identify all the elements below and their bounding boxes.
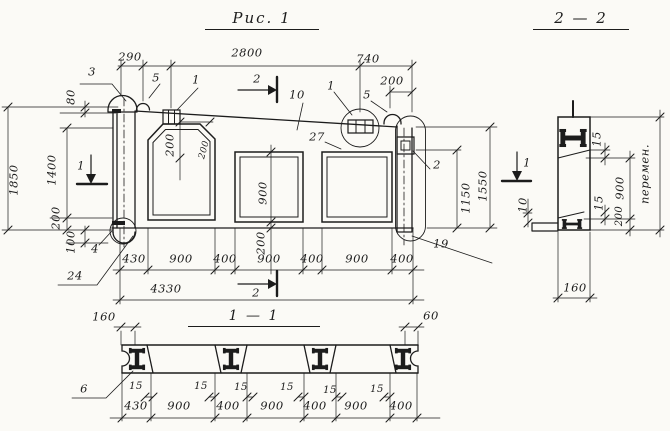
s11-dim-15-b: 15 bbox=[194, 382, 208, 392]
labels-layer: 2902800740200185080140020010020020090020… bbox=[0, 0, 670, 431]
s11-dim-400-c: 400 bbox=[389, 400, 412, 412]
dim-80: 80 bbox=[65, 89, 77, 105]
s22-dim-15-lower: 15 bbox=[593, 195, 605, 211]
dim-200-opening1-vert: 200 bbox=[164, 133, 176, 156]
dim-400-a: 400 bbox=[213, 253, 236, 265]
dim-1150: 1150 bbox=[460, 182, 472, 213]
s11-dim-160: 160 bbox=[92, 311, 115, 323]
dim-400-c: 400 bbox=[390, 253, 413, 265]
s11-dim-15-c: 15 bbox=[234, 383, 248, 393]
dim-430-bottom: 430 bbox=[122, 253, 145, 265]
dim-900-bay3: 900 bbox=[345, 253, 368, 265]
callout-24: 24 bbox=[67, 270, 83, 282]
s22-dim-variable: перемен. bbox=[639, 144, 651, 204]
dim-200-opening1-horiz: 200 bbox=[198, 140, 212, 160]
dim-1550: 1550 bbox=[477, 170, 489, 201]
dim-1850: 1850 bbox=[8, 164, 20, 195]
callout-27: 27 bbox=[309, 131, 325, 143]
dim-900-bay1: 900 bbox=[169, 253, 192, 265]
section-marker-2-top: 2 bbox=[253, 73, 261, 85]
s22-dim-10: 10 bbox=[517, 197, 529, 213]
callout-4: 4 bbox=[91, 243, 99, 255]
s11-dim-900-bay1: 900 bbox=[167, 400, 190, 412]
dim-4330-overall: 4330 bbox=[150, 283, 181, 295]
s11-dim-400-b: 400 bbox=[303, 400, 326, 412]
section-marker-1-left: 1 bbox=[77, 160, 85, 172]
dim-900-opening2: 900 bbox=[257, 181, 269, 204]
s11-dim-15-f: 15 bbox=[370, 385, 384, 395]
s22-dim-160: 160 bbox=[563, 282, 586, 294]
dim-200-top-right: 200 bbox=[380, 75, 403, 87]
s11-dim-900-bay3: 900 bbox=[344, 400, 367, 412]
callout-3: 3 bbox=[88, 66, 96, 78]
s11-dim-15-a: 15 bbox=[129, 382, 143, 392]
section-marker-1-right: 1 bbox=[523, 157, 531, 169]
callout-1-left: 1 bbox=[192, 74, 200, 86]
callout-2: 2 bbox=[433, 159, 441, 171]
s11-dim-900-bay2: 900 bbox=[260, 400, 283, 412]
callout-1-right: 1 bbox=[327, 80, 335, 92]
callout-5-left: 5 bbox=[152, 72, 160, 84]
s22-dim-200: 200 bbox=[615, 206, 625, 227]
dim-740: 740 bbox=[356, 53, 379, 65]
callout-10: 10 bbox=[289, 89, 305, 101]
section-marker-2-bottom: 2 bbox=[252, 287, 260, 299]
callout-5-right: 5 bbox=[363, 89, 371, 101]
dim-200-left: 200 bbox=[50, 206, 62, 229]
s11-dim-400-a: 400 bbox=[216, 400, 239, 412]
s11-dim-60: 60 bbox=[423, 310, 439, 322]
callout-19: 19 bbox=[433, 238, 449, 250]
s11-dim-15-d: 15 bbox=[280, 383, 294, 393]
drawing-sheet: Рис. 1 2 — 2 1 — 1 290280074020018508014… bbox=[0, 0, 670, 431]
dim-100-left: 100 bbox=[65, 230, 77, 253]
s11-callout-6: 6 bbox=[80, 383, 88, 395]
dim-900-bay2: 900 bbox=[257, 253, 280, 265]
dim-2800: 2800 bbox=[231, 47, 262, 59]
s22-dim-900: 900 bbox=[614, 176, 626, 199]
s11-dim-15-e: 15 bbox=[323, 386, 337, 396]
s22-dim-15-upper: 15 bbox=[591, 131, 603, 147]
s11-dim-430: 430 bbox=[124, 400, 147, 412]
dim-290: 290 bbox=[118, 51, 141, 63]
dim-400-b: 400 bbox=[300, 253, 323, 265]
dim-1400: 1400 bbox=[46, 154, 58, 185]
